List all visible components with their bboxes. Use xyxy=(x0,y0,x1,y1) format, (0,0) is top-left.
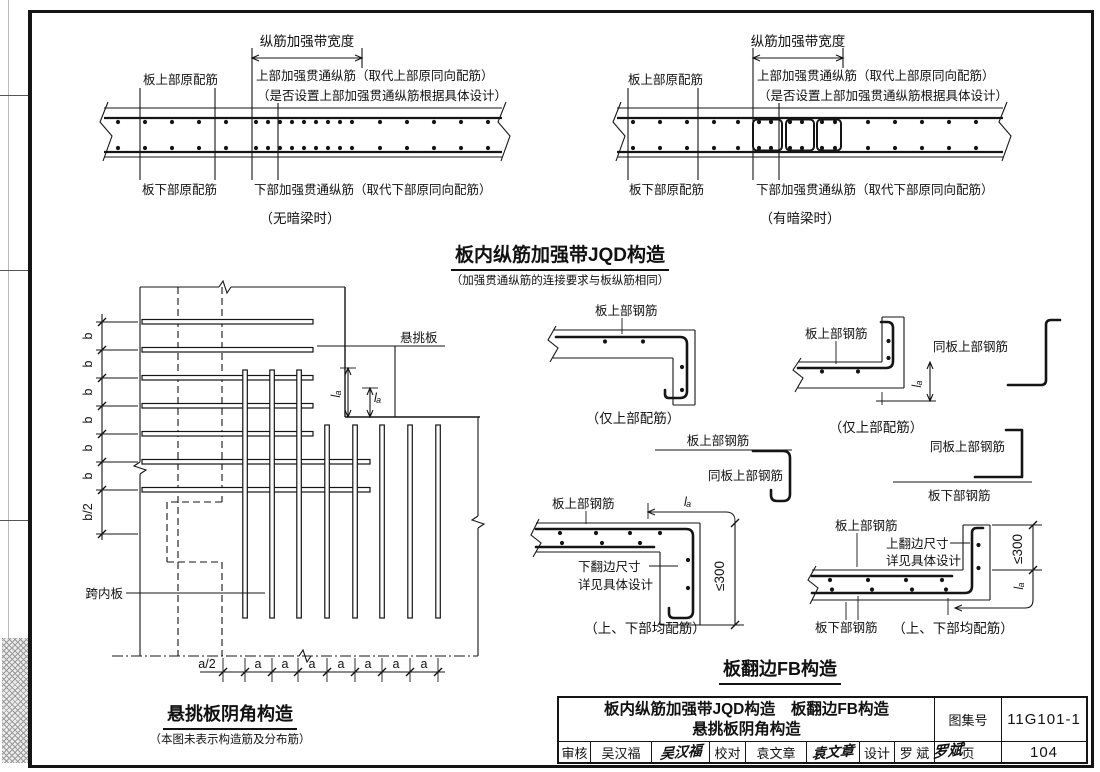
cantilever-label: 悬挑板 xyxy=(400,331,438,345)
jqd-section-no-beam: 纵筋加强带宽度 板上部原配筋 上部加强贯通纵筋（取代上部原同向配筋） （是否设置… xyxy=(95,22,515,230)
margin-tick xyxy=(0,270,28,271)
same-top-bar-label: 同板上部钢筋 xyxy=(930,439,1005,454)
fb-details: 板上部钢筋 （仅上部配筋） 板上部钢筋 xyxy=(520,288,1095,688)
same-top-bar-label: 同板上部钢筋 xyxy=(933,339,1008,354)
fb-detail-up-both: 板上部钢筋 上翻边尺寸 详见具体设计 ≤300 lₐ xyxy=(808,518,1042,636)
dimension-band-width: 纵筋加强带宽度 xyxy=(252,33,362,180)
la-label: lₐ xyxy=(1012,582,1026,589)
margin-tick xyxy=(0,95,28,96)
dimension-la: lₐ lₐ xyxy=(329,368,381,417)
check-signature: 吴汉福 xyxy=(652,742,710,762)
corner-title-block: 悬挑板阴角构造 （本图未表示构造筋及分布筋） xyxy=(100,700,360,748)
max-300-label: ≤300 xyxy=(712,561,727,591)
top-rebar-dots xyxy=(116,120,490,124)
dim-b: b xyxy=(81,388,95,395)
caption-both-bars: （上、下部均配筋） xyxy=(892,620,1014,636)
dim-a: a xyxy=(309,657,316,671)
title-block: 板内纵筋加强带JQD构造 板翻边FB构造 悬挑板阴角构造 图集号 11G101-… xyxy=(557,696,1088,764)
fb-detail-up-top-only: 板上部钢筋 lₐ （仅上部配筋） 同板上部钢筋 xyxy=(793,317,1060,435)
drawing-sheet: 纵筋加强带宽度 板上部原配筋 上部加强贯通纵筋（取代上部原同向配筋） （是否设置… xyxy=(0,0,1100,772)
horizontal-top-bars xyxy=(142,320,370,493)
top-bar-label: 板上部钢筋 xyxy=(552,496,615,511)
max-300-label: ≤300 xyxy=(1010,534,1025,564)
fb-title-block: 板翻边FB构造 xyxy=(660,655,900,685)
span-slab-annotation: 跨内板 xyxy=(85,587,265,601)
sheet-title: 板内纵筋加强带JQD构造 板翻边FB构造 悬挑板阴角构造 xyxy=(559,698,935,742)
top-orig-label: 板上部原配筋 xyxy=(143,72,218,87)
band-width-label: 纵筋加强带宽度 xyxy=(751,33,846,49)
margin-line xyxy=(8,0,9,640)
hidden-beam-stirrups xyxy=(753,120,841,151)
same-top-bar-label: 同板上部钢筋 xyxy=(708,468,783,483)
top-bar-label: 板上部钢筋 xyxy=(595,303,658,318)
jqd-section-with-beam: 纵筋加强带宽度 板上部原配筋 上部加强贯通纵筋（取代上部原同向配筋） （是否设置… xyxy=(608,22,1028,230)
top-note-label: （是否设置上部加强贯通纵筋根据具体设计） xyxy=(758,88,1008,103)
down-edge-label-2: 详见具体设计 xyxy=(578,577,653,592)
up-edge-label-2: 详见具体设计 xyxy=(886,553,961,568)
span-slab-label: 跨内板 xyxy=(85,587,123,601)
atlas-number: 11G101-1 xyxy=(1002,698,1086,742)
caption-both-bars: （上、下部均配筋） xyxy=(584,620,706,636)
binding-hatch xyxy=(2,638,28,763)
corner-plan: b b b b b b b/2 xyxy=(55,278,505,698)
la-label: lₐ xyxy=(374,391,381,405)
dimension-b-chain: b b b b b b b/2 xyxy=(81,314,138,540)
proof-name: 袁文章 xyxy=(746,742,807,762)
top-note-label: （是否设置上部加强贯通纵筋根据具体设计） xyxy=(257,88,507,103)
top-add-label: 上部加强贯通纵筋（取代上部原同向配筋） xyxy=(757,68,995,83)
fb-bar-shape-top: 板上部钢筋 同板上部钢筋 xyxy=(655,433,792,501)
page-number: 104 xyxy=(1002,742,1086,762)
la-label: lₐ xyxy=(684,495,691,509)
dim-b: b xyxy=(81,416,95,423)
top-rebar-dots xyxy=(631,120,978,124)
dim-a: a xyxy=(421,657,428,671)
up-edge-label-1: 上翻边尺寸 xyxy=(886,537,949,551)
design-label: 设计 xyxy=(860,742,895,762)
top-bar-label: 板上部钢筋 xyxy=(805,326,868,341)
fb-detail-down-both: 板上部钢筋 lₐ 下翻边尺寸 详见具体设计 ≤300 （上、 xyxy=(531,495,744,636)
caption-no-beam: （无暗梁时） xyxy=(260,211,341,226)
check-name: 吴汉福 xyxy=(591,742,652,762)
vertical-top-bars xyxy=(243,370,440,618)
check-label: 审核 xyxy=(559,742,591,762)
signature-text: 吴汉福 xyxy=(659,740,702,764)
slab-section xyxy=(613,102,1011,161)
dim-a: a xyxy=(282,657,289,671)
bottom-rebar-dots xyxy=(116,146,490,150)
dim-a-half: a/2 xyxy=(198,657,215,671)
corner-title: 悬挑板阴角构造 xyxy=(163,700,297,730)
dim-a: a xyxy=(255,657,262,671)
sheet-title-line2: 悬挑板阴角构造 xyxy=(692,720,801,739)
bottom-add-label: 下部加强贯通纵筋（取代下部原同向配筋） xyxy=(756,182,994,197)
margin-tick xyxy=(0,520,28,521)
atlas-label: 图集号 xyxy=(935,698,1002,742)
dim-a: a xyxy=(338,657,345,671)
band-width-label: 纵筋加强带宽度 xyxy=(260,33,355,49)
leader-lines xyxy=(140,88,215,180)
dim-b: b xyxy=(81,360,95,367)
fb-title: 板翻边FB构造 xyxy=(719,655,841,685)
dimension-a-chain: a/2 a a a a a a a xyxy=(198,657,445,682)
bottom-add-label: 下部加强贯通纵筋（取代下部原同向配筋） xyxy=(254,182,492,197)
sheet-title-line1: 板内纵筋加强带JQD构造 板翻边FB构造 xyxy=(604,700,889,719)
corner-subtitle: （本图未表示构造筋及分布筋） xyxy=(150,734,311,746)
top-bar-label: 板上部钢筋 xyxy=(687,433,750,448)
top-orig-label: 板上部原配筋 xyxy=(628,72,703,87)
caption-with-beam: （有暗梁时） xyxy=(760,211,841,226)
la-label: lₐ xyxy=(910,380,924,387)
dim-a: a xyxy=(365,657,372,671)
dim-b: b xyxy=(81,472,95,479)
dim-b: b xyxy=(81,332,95,339)
down-edge-label-1: 下翻边尺寸 xyxy=(578,560,641,574)
signature-text: 袁文章 xyxy=(812,740,855,764)
bottom-orig-label: 板下部原配筋 xyxy=(629,182,704,197)
slab-section xyxy=(100,102,510,161)
fb-detail-down-top-only: 板上部钢筋 （仅上部配筋） xyxy=(548,303,695,426)
la-label: lₐ xyxy=(329,390,343,397)
bottom-bar-label: 板下部钢筋 xyxy=(815,620,878,635)
bottom-bar-label: 板下部钢筋 xyxy=(928,488,991,503)
top-add-label: 上部加强贯通纵筋（取代上部原同向配筋） xyxy=(256,68,494,83)
proof-signature: 袁文章 xyxy=(807,742,860,762)
dim-b: b xyxy=(81,444,95,451)
dimension-band-width: 纵筋加强带宽度 xyxy=(751,33,846,180)
caption-only-top: （仅上部配筋） xyxy=(586,410,681,426)
jqd-title: 板内纵筋加强带JQD构造 xyxy=(451,240,669,271)
dim-a: a xyxy=(393,657,400,671)
proof-label: 校对 xyxy=(710,742,746,762)
dim-b-half: b/2 xyxy=(81,503,95,520)
top-bar-label: 板上部钢筋 xyxy=(835,518,898,533)
caption-only-top: （仅上部配筋） xyxy=(829,419,924,435)
bottom-orig-label: 板下部原配筋 xyxy=(142,182,217,197)
fb-bar-shape-bottom: 同板上部钢筋 板下部钢筋 xyxy=(893,430,1032,503)
bottom-rebar-dots xyxy=(631,146,978,150)
leader-lines xyxy=(628,88,698,180)
